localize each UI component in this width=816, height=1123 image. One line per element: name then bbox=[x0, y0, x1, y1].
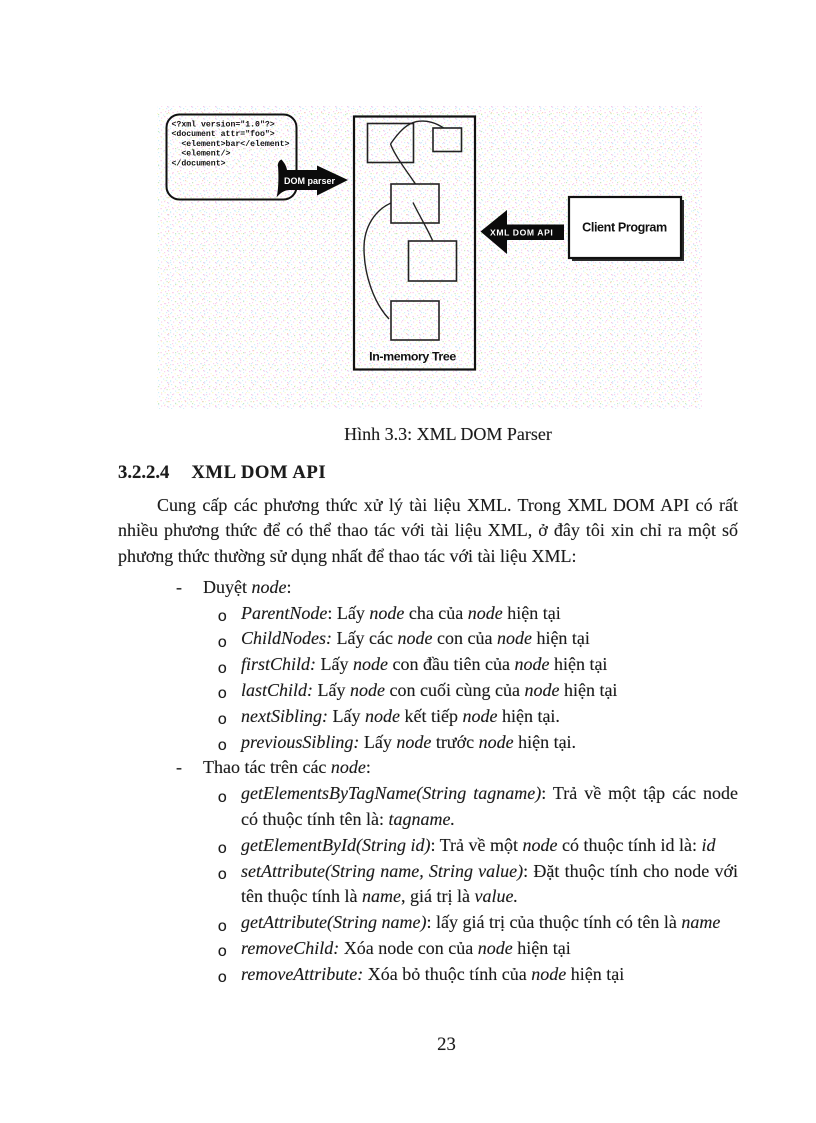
svg-text:DOM parser: DOM parser bbox=[284, 176, 336, 186]
svg-text:</document>: </document> bbox=[172, 159, 226, 169]
svg-text:<element/>: <element/> bbox=[172, 149, 231, 159]
svg-text:<element>bar</element>: <element>bar</element> bbox=[172, 139, 290, 149]
svg-text:<document attr="foo">: <document attr="foo"> bbox=[172, 129, 275, 139]
svg-text:<?xml version="1.0"?>: <?xml version="1.0"?> bbox=[172, 119, 275, 129]
svg-text:XML DOM API: XML DOM API bbox=[490, 228, 553, 238]
svg-text:Client Program: Client Program bbox=[582, 221, 667, 235]
svg-text:In-memory Tree: In-memory Tree bbox=[369, 350, 456, 364]
